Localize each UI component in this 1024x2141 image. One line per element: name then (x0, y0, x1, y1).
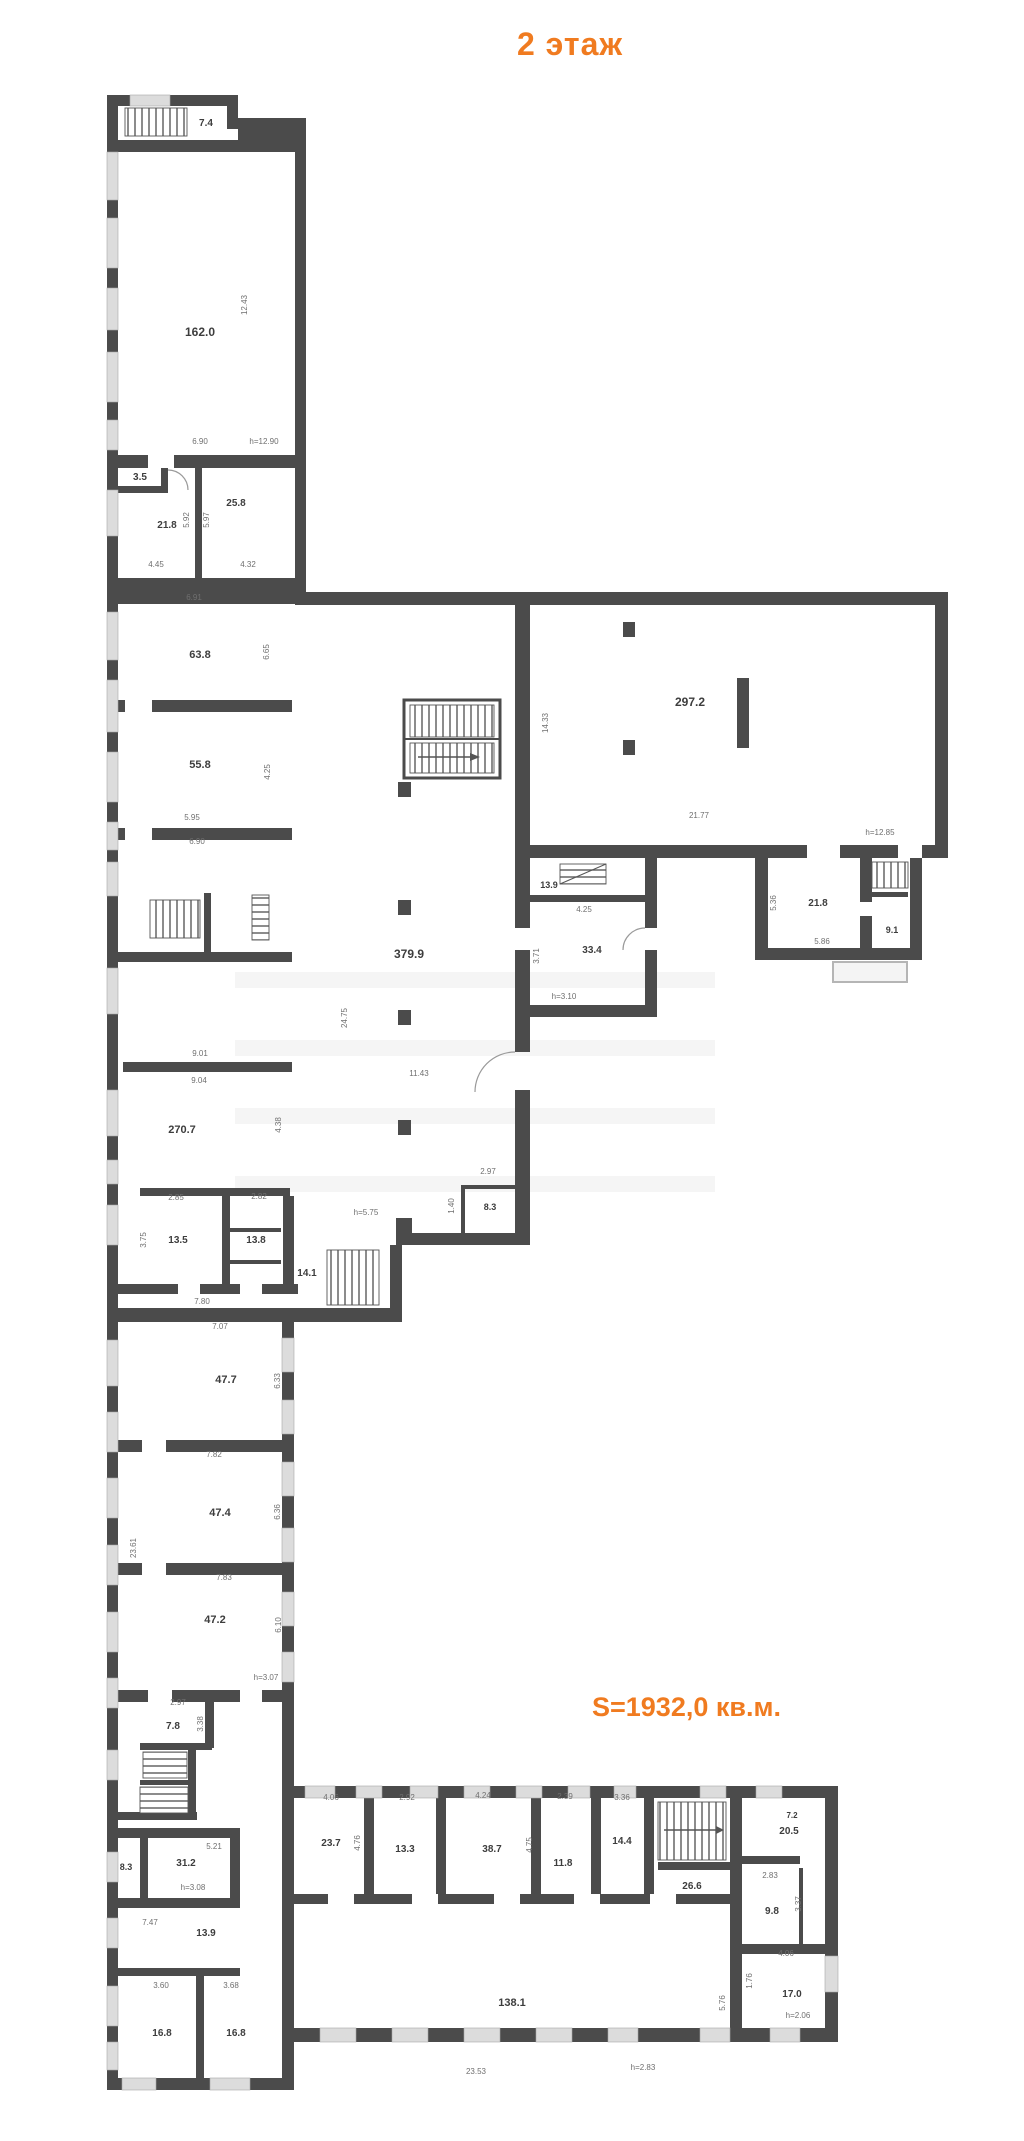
dimension-label: 2.82 (251, 1192, 267, 1201)
room-area-label: 14.1 (297, 1268, 317, 1279)
room-area-label: 297.2 (675, 695, 705, 709)
dimension-label: 2.97 (170, 1698, 186, 1707)
room-area-label: 16.8 (152, 2028, 172, 2039)
dimension-label: h=2.06 (786, 2011, 811, 2020)
dimension-label: 6.33 (273, 1373, 282, 1389)
room-area-label: 11.8 (554, 1858, 573, 1869)
dimension-label: 5.95 (184, 813, 200, 822)
dimension-label: 4.32 (240, 560, 256, 569)
room-area-label: 21.8 (808, 898, 828, 909)
room-area-label: 14.4 (612, 1836, 632, 1847)
dimension-label: 1.76 (745, 1973, 754, 1989)
door-arc (623, 928, 645, 950)
room-area-label: 162.0 (185, 325, 215, 339)
balcony (833, 962, 907, 982)
door-arc (475, 1052, 515, 1092)
dimension-label: h=12.85 (865, 828, 895, 837)
room-area-label: 20.5 (779, 1826, 799, 1837)
dimension-label: 6.90 (192, 437, 208, 446)
dimension-label: 5.36 (769, 895, 778, 911)
stairs-hatch-left-b (252, 895, 269, 940)
dimension-label: 4.24 (475, 1791, 491, 1800)
dimension-label: 4.06 (323, 1793, 339, 1802)
dimension-label: 23.53 (466, 2067, 487, 2076)
dimension-label: 7.82 (206, 1450, 222, 1459)
dimension-label: 4.25 (263, 764, 272, 780)
room-area-label: 7.4 (199, 118, 213, 129)
dimension-label: 3.37 (794, 1896, 803, 1912)
column (623, 622, 635, 637)
dimension-label: 7.07 (212, 1322, 228, 1331)
column (398, 1010, 411, 1025)
dimension-label: 4.06 (778, 1949, 794, 1958)
dimension-label: 7.80 (194, 1297, 210, 1306)
dimension-label: 1.40 (447, 1198, 456, 1214)
room-area-label: 63.8 (189, 649, 210, 661)
dimension-label: 2.92 (399, 1793, 415, 1802)
room-area-label: 8.3 (120, 1862, 133, 1872)
room-area-label: 13.9 (196, 1928, 216, 1939)
room-area-label: 55.8 (189, 759, 210, 771)
room-area-label: 13.5 (168, 1235, 188, 1246)
dimension-label: 6.10 (274, 1617, 283, 1633)
room-area-label: 25.8 (226, 498, 246, 509)
room-area-label: 9.1 (886, 925, 899, 935)
dimension-label: 6.36 (273, 1504, 282, 1520)
stairs-hatch-central (404, 700, 500, 778)
door-arc (168, 470, 188, 490)
dimension-label: 7.83 (216, 1573, 232, 1582)
column (398, 782, 411, 797)
room-area-label: 7.8 (166, 1721, 180, 1732)
room-area-label: 13.3 (395, 1844, 415, 1855)
dimension-label: 5.97 (202, 512, 211, 528)
dimension-label: 5.86 (814, 937, 830, 946)
dimension-label: 4.76 (353, 1835, 362, 1851)
dimension-label: 9.01 (192, 1049, 208, 1058)
plan-labels: 7.4162.03.521.825.863.855.8270.713.513.8… (120, 118, 899, 2076)
room-area-label: 47.2 (204, 1614, 225, 1626)
column (623, 740, 635, 755)
room-area-label: 23.7 (321, 1838, 341, 1849)
dimension-label: 11.43 (409, 1069, 429, 1078)
dimension-label: 4.45 (148, 560, 164, 569)
room-area-label: 9.8 (765, 1906, 779, 1917)
room-area-label: 13.8 (246, 1235, 266, 1246)
room-area-label: 38.7 (482, 1844, 502, 1855)
dimension-label: 3.38 (196, 1716, 205, 1732)
dimension-label: h=3.10 (552, 992, 577, 1001)
room-area-label: 31.2 (176, 1858, 196, 1869)
dimension-label: 7.47 (142, 1918, 158, 1927)
room-area-label: 270.7 (168, 1124, 196, 1136)
stairs-hatch-top (125, 108, 187, 136)
floor-plan-drawing: 7.4162.03.521.825.863.855.8270.713.513.8… (0, 0, 1024, 2141)
dimension-label: 2.83 (762, 1871, 778, 1880)
room-area-label: 8.3 (484, 1202, 497, 1212)
room-area-label: 17.0 (782, 1989, 802, 2000)
stairs-hatch-bottom-wing (658, 1802, 726, 1860)
room-area-label: 47.7 (215, 1374, 236, 1386)
dimension-label: 5.21 (206, 1842, 222, 1851)
dimension-label: 2.85 (168, 1193, 184, 1202)
dimension-label: 4.25 (576, 905, 592, 914)
dimension-label: 3.68 (223, 1981, 239, 1990)
dimension-label: 5.92 (182, 512, 191, 528)
dimension-label: 3.60 (153, 1981, 169, 1990)
dimension-label: 2.97 (480, 1167, 496, 1176)
room-area-label: 16.8 (226, 2028, 246, 2039)
room-area-label: 13.9 (540, 880, 558, 890)
dimension-label: 12.43 (240, 294, 249, 315)
dimension-label: 23.61 (129, 1537, 138, 1558)
stairs-hatch-left-bottom-a (143, 1752, 187, 1778)
stairs-hatch-14-1 (327, 1250, 379, 1305)
room-area-label: 3.5 (133, 472, 147, 483)
dimension-label: 5.76 (718, 1995, 727, 2011)
dimension-label: h=3.08 (181, 1883, 206, 1892)
dimension-label: 4.38 (274, 1117, 283, 1133)
room-area-label: 138.1 (498, 1997, 526, 2009)
floor-plan-page: 2 этаж S=1932,0 кв.м. (0, 0, 1024, 2141)
dimension-label: 6.65 (262, 644, 271, 660)
dimension-label: 6.91 (186, 593, 202, 602)
dimension-label: 21.77 (689, 811, 710, 820)
stairs-hatch-left-bottom-b (140, 1787, 188, 1813)
dimension-label: 2.39 (557, 1792, 573, 1801)
dimension-label: 3.75 (139, 1232, 148, 1248)
room-area-label: 7.2 (786, 1811, 798, 1820)
dimension-label: h=5.75 (354, 1208, 379, 1217)
dimension-label: 4.75 (525, 1837, 534, 1853)
room-area-label: 21.8 (157, 520, 177, 531)
column (398, 1120, 411, 1135)
room-area-label: 379.9 (394, 947, 424, 961)
room-area-label: 26.6 (682, 1881, 702, 1892)
column (398, 900, 411, 915)
room-area-label: 47.4 (209, 1507, 231, 1519)
dimension-label: h=12.90 (249, 437, 279, 446)
dimension-label: 24.75 (340, 1007, 349, 1028)
dimension-label: 3.36 (614, 1793, 630, 1802)
dimension-label: 9.04 (191, 1076, 207, 1085)
stairs-hatch-left-a (150, 900, 200, 938)
dimension-label: h=3.07 (254, 1673, 279, 1682)
dimension-label: 14.33 (541, 712, 550, 733)
dimension-label: h=2.83 (631, 2063, 656, 2072)
stairs-hatch-right-wing (872, 862, 908, 888)
dimension-label: 6.90 (189, 837, 205, 846)
dimension-label: 3.71 (532, 948, 541, 964)
room-area-label: 33.4 (582, 945, 602, 956)
